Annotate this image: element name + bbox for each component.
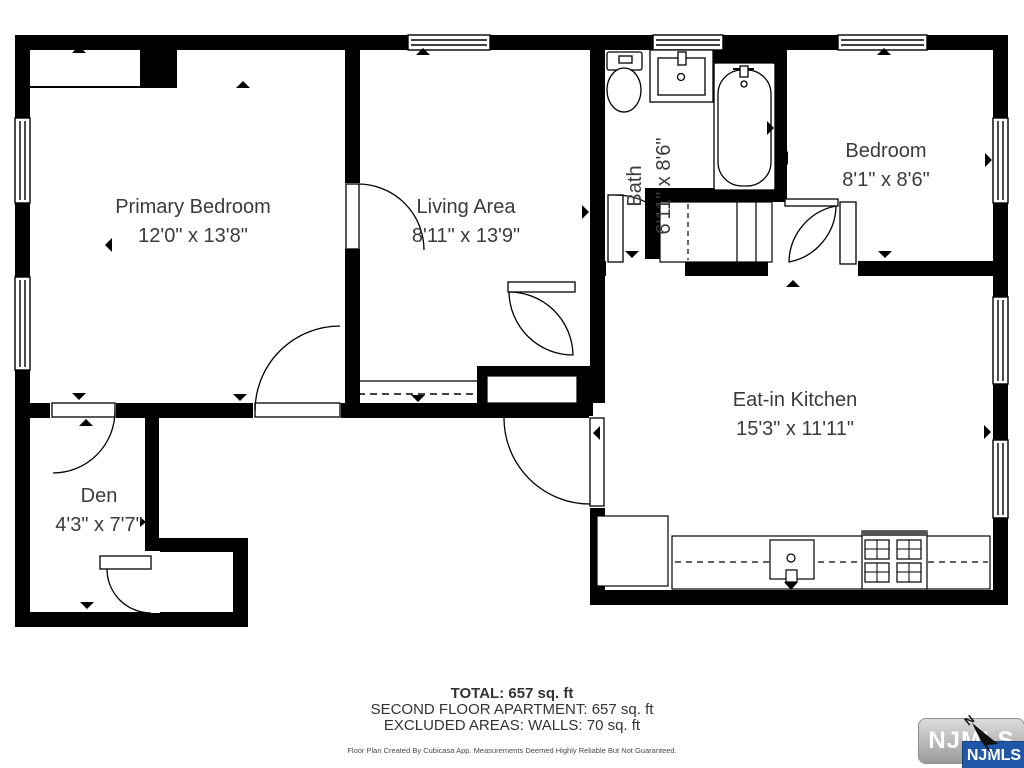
north-arrow-icon	[972, 723, 998, 755]
floor-plan-page: Primary Bedroom 12'0" x 13'8" Living Are…	[0, 0, 1024, 768]
north-arrow-compass: N	[0, 0, 1024, 768]
